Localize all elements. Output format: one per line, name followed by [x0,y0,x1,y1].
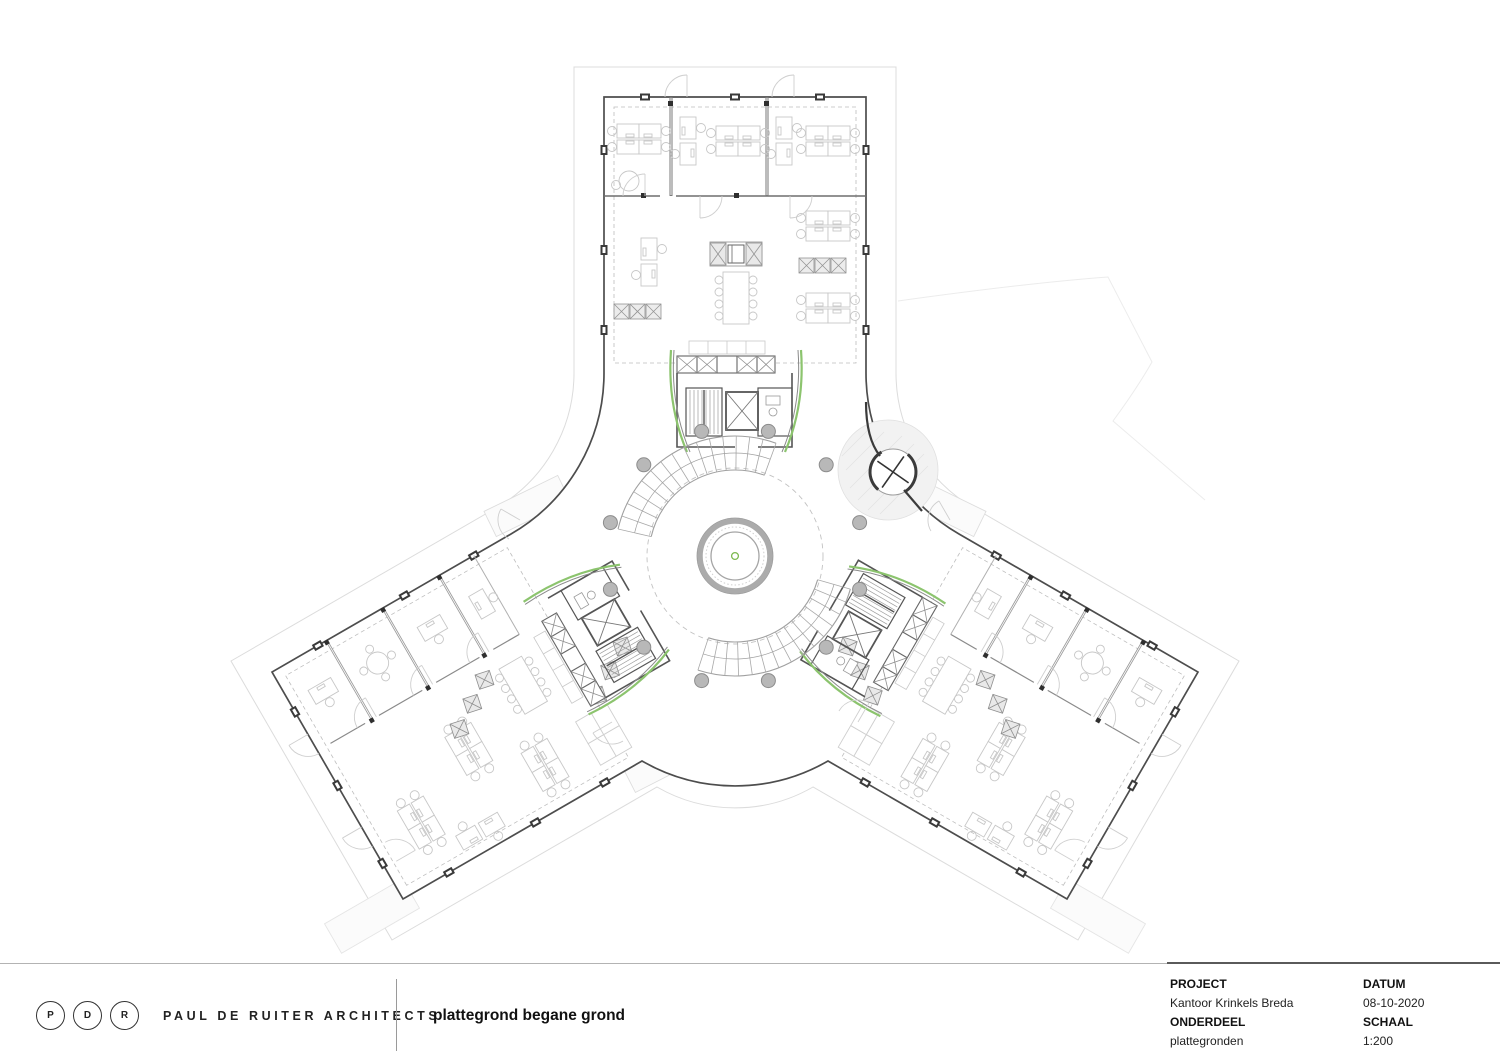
column [853,582,867,596]
project-label: PROJECT [1170,975,1293,994]
building-outline [272,97,1198,899]
column [853,516,867,530]
column [761,424,775,438]
column [637,458,651,472]
column [695,674,709,688]
column [819,458,833,472]
brand-name: PAUL DE RUITER ARCHITECTS [163,1009,440,1023]
sheet-title: plattegrond begane grond [433,1007,625,1025]
column [637,640,651,654]
footer-divider [396,979,397,1051]
pdr-logo: P D R PAUL DE RUITER ARCHITECTS [36,1001,440,1030]
column [695,424,709,438]
sheet: P D R PAUL DE RUITER ARCHITECTS plattegr… [0,0,1500,1060]
green-center-dot [732,553,739,560]
onderdeel-label: ONDERDEEL [1170,1013,1293,1032]
title-bar-rule [1167,962,1500,964]
column [603,516,617,530]
floor-plan-drawing [0,0,1500,963]
site-path [898,277,1205,500]
logo-letter-d: D [73,1001,102,1030]
column [603,582,617,596]
project-value: Kantoor Krinkels Breda [1170,994,1293,1013]
datum-value: 08-10-2020 [1363,994,1424,1013]
logo-letter-p: P [36,1001,65,1030]
schaal-label: SCHAAL [1363,1013,1424,1032]
column [819,640,833,654]
column [761,674,775,688]
datum-label: DATUM [1363,975,1424,994]
title-bar: P D R PAUL DE RUITER ARCHITECTS plattegr… [0,963,1500,1061]
schaal-value: 1:200 [1363,1032,1424,1051]
logo-letter-r: R [110,1001,139,1030]
onderdeel-value: plattegronden [1170,1032,1293,1051]
title-block-left: PROJECT Kantoor Krinkels Breda ONDERDEEL… [1170,975,1293,1051]
title-block-right: DATUM 08-10-2020 SCHAAL 1:200 [1363,975,1424,1051]
